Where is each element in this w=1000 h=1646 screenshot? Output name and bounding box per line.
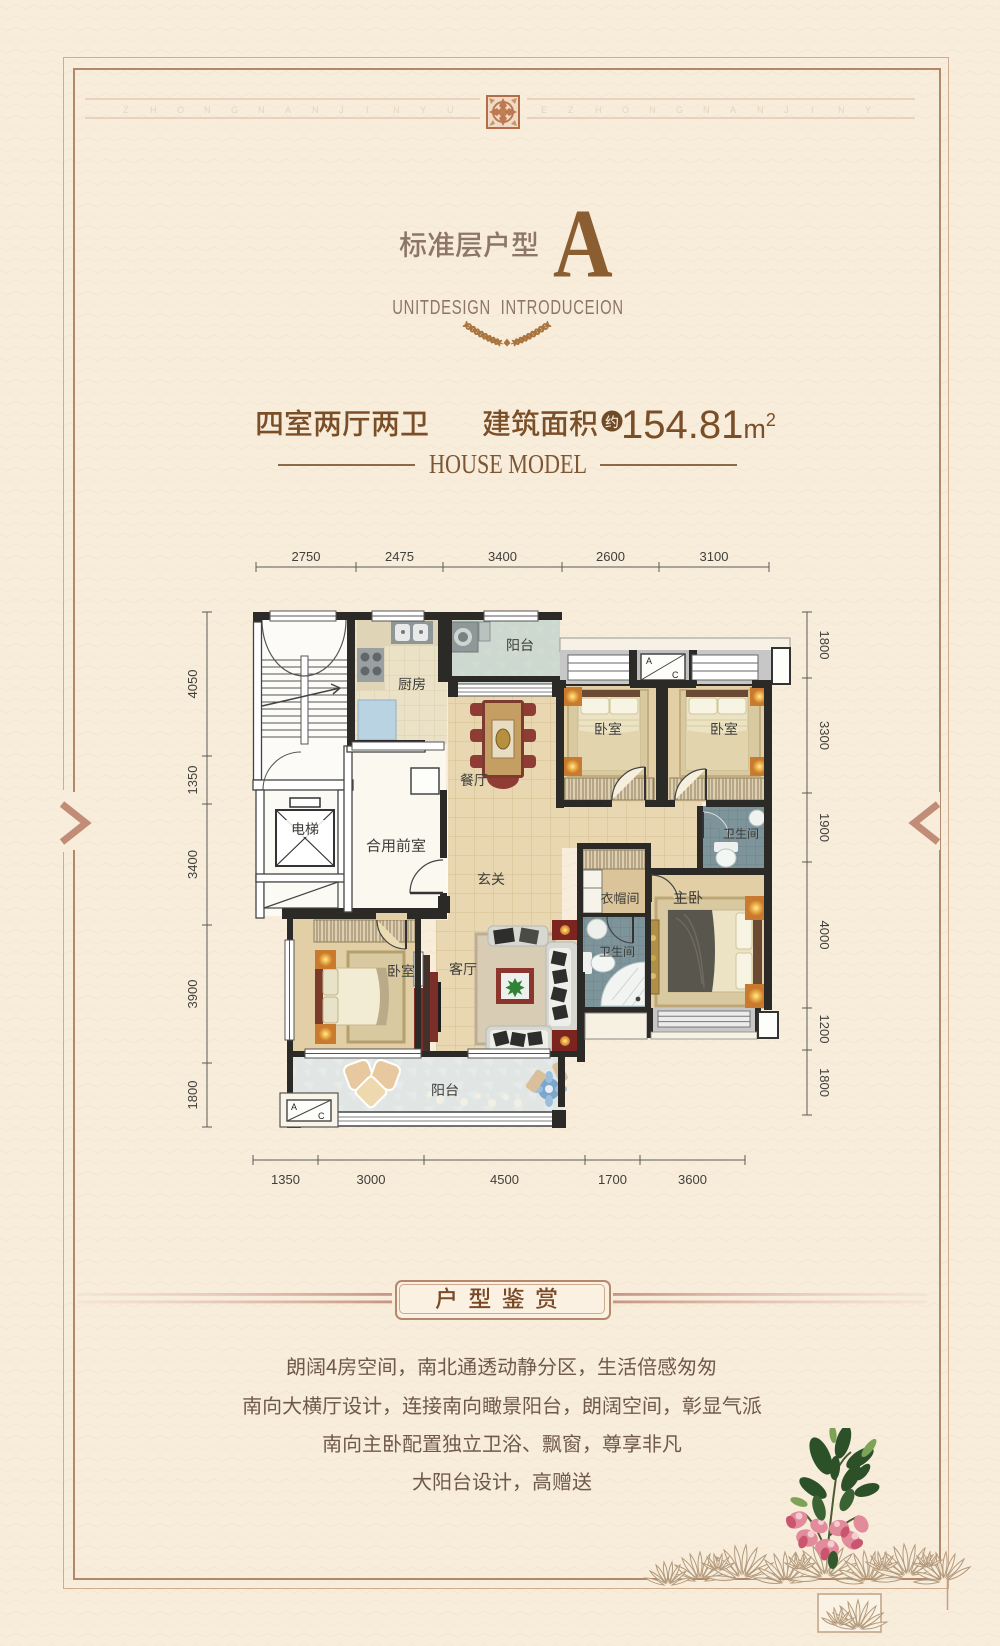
svg-text:N: N (258, 105, 265, 115)
svg-text:N: N (312, 105, 319, 115)
svg-text:J: J (339, 105, 344, 115)
svg-text:H: H (595, 105, 602, 115)
svg-text:1800: 1800 (185, 1081, 200, 1110)
svg-text:E: E (541, 105, 547, 115)
svg-text:J: J (784, 105, 789, 115)
svg-text:N: N (703, 105, 710, 115)
svg-text:H: H (150, 105, 157, 115)
svg-text:3100: 3100 (700, 549, 729, 564)
svg-text:3400: 3400 (488, 549, 517, 564)
svg-text:C: C (318, 1111, 325, 1121)
svg-text:2600: 2600 (596, 549, 625, 564)
svg-text:N: N (649, 105, 656, 115)
svg-text:3400: 3400 (185, 850, 200, 879)
svg-text:N: N (393, 105, 400, 115)
svg-text:A: A (646, 656, 652, 666)
svg-text:1900: 1900 (817, 813, 832, 842)
svg-text:1350: 1350 (185, 766, 200, 795)
svg-text:2475: 2475 (385, 549, 414, 564)
svg-text:N: N (204, 105, 211, 115)
svg-text:1700: 1700 (598, 1172, 627, 1187)
svg-text:3900: 3900 (185, 980, 200, 1009)
svg-text:N: N (757, 105, 764, 115)
svg-text:1800: 1800 (817, 1068, 832, 1097)
svg-text:A: A (730, 105, 736, 115)
svg-text:O: O (177, 105, 184, 115)
svg-text:I: I (811, 105, 814, 115)
svg-text:3000: 3000 (357, 1172, 386, 1187)
svg-text:C: C (672, 670, 679, 680)
svg-text:2750: 2750 (292, 549, 321, 564)
svg-text:1350: 1350 (271, 1172, 300, 1187)
svg-text:Z: Z (123, 105, 129, 115)
svg-text:A: A (285, 105, 291, 115)
svg-text:4500: 4500 (490, 1172, 519, 1187)
svg-text:Y: Y (865, 105, 871, 115)
svg-text:Y: Y (420, 105, 426, 115)
svg-text:3600: 3600 (678, 1172, 707, 1187)
svg-text:1800: 1800 (817, 631, 832, 660)
svg-text:3300: 3300 (817, 721, 832, 750)
svg-text:A: A (291, 1102, 297, 1112)
svg-text:G: G (676, 105, 683, 115)
svg-text:O: O (622, 105, 629, 115)
svg-text:4050: 4050 (185, 670, 200, 699)
svg-text:4000: 4000 (817, 921, 832, 950)
svg-text:U: U (447, 105, 454, 115)
svg-text:1200: 1200 (817, 1015, 832, 1044)
svg-text:N: N (838, 105, 845, 115)
svg-text:I: I (366, 105, 369, 115)
svg-text:G: G (231, 105, 238, 115)
svg-text:Z: Z (568, 105, 574, 115)
